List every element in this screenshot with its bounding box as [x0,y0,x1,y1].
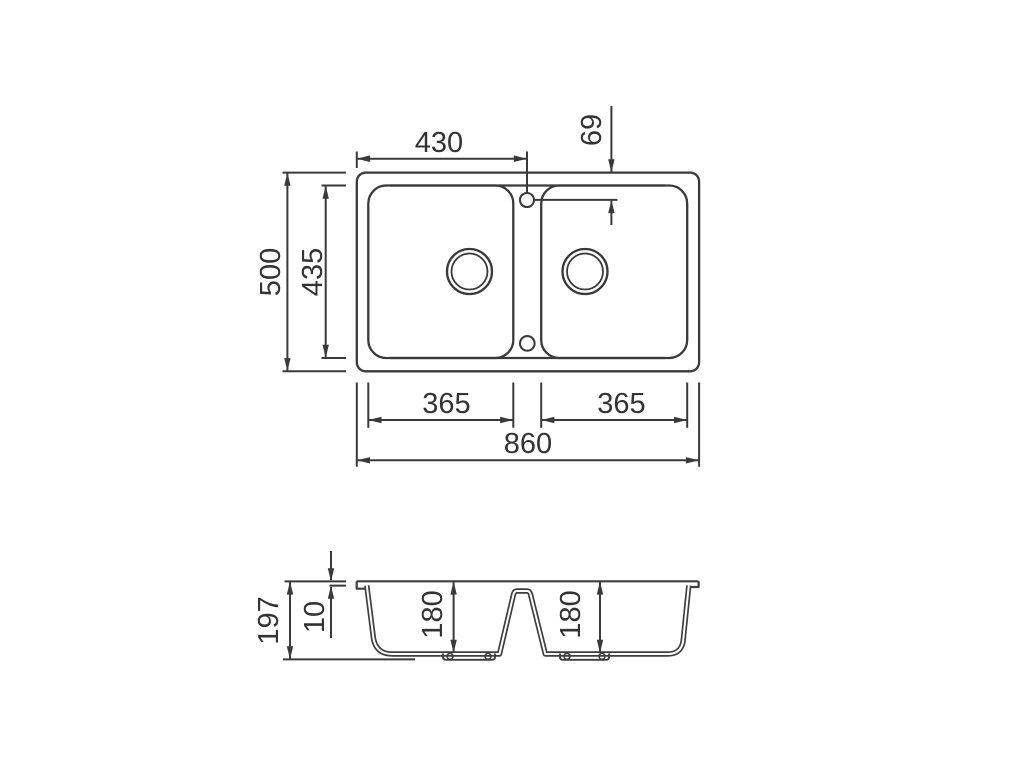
svg-text:197: 197 [253,596,285,644]
svg-text:435: 435 [297,248,329,296]
svg-text:860: 860 [504,428,552,460]
svg-text:69: 69 [576,114,608,146]
svg-text:500: 500 [255,248,287,296]
svg-text:180: 180 [555,590,587,638]
svg-text:180: 180 [417,590,449,638]
svg-text:365: 365 [597,388,645,420]
svg-text:430: 430 [415,127,463,159]
svg-text:10: 10 [299,601,331,633]
svg-text:365: 365 [422,388,470,420]
